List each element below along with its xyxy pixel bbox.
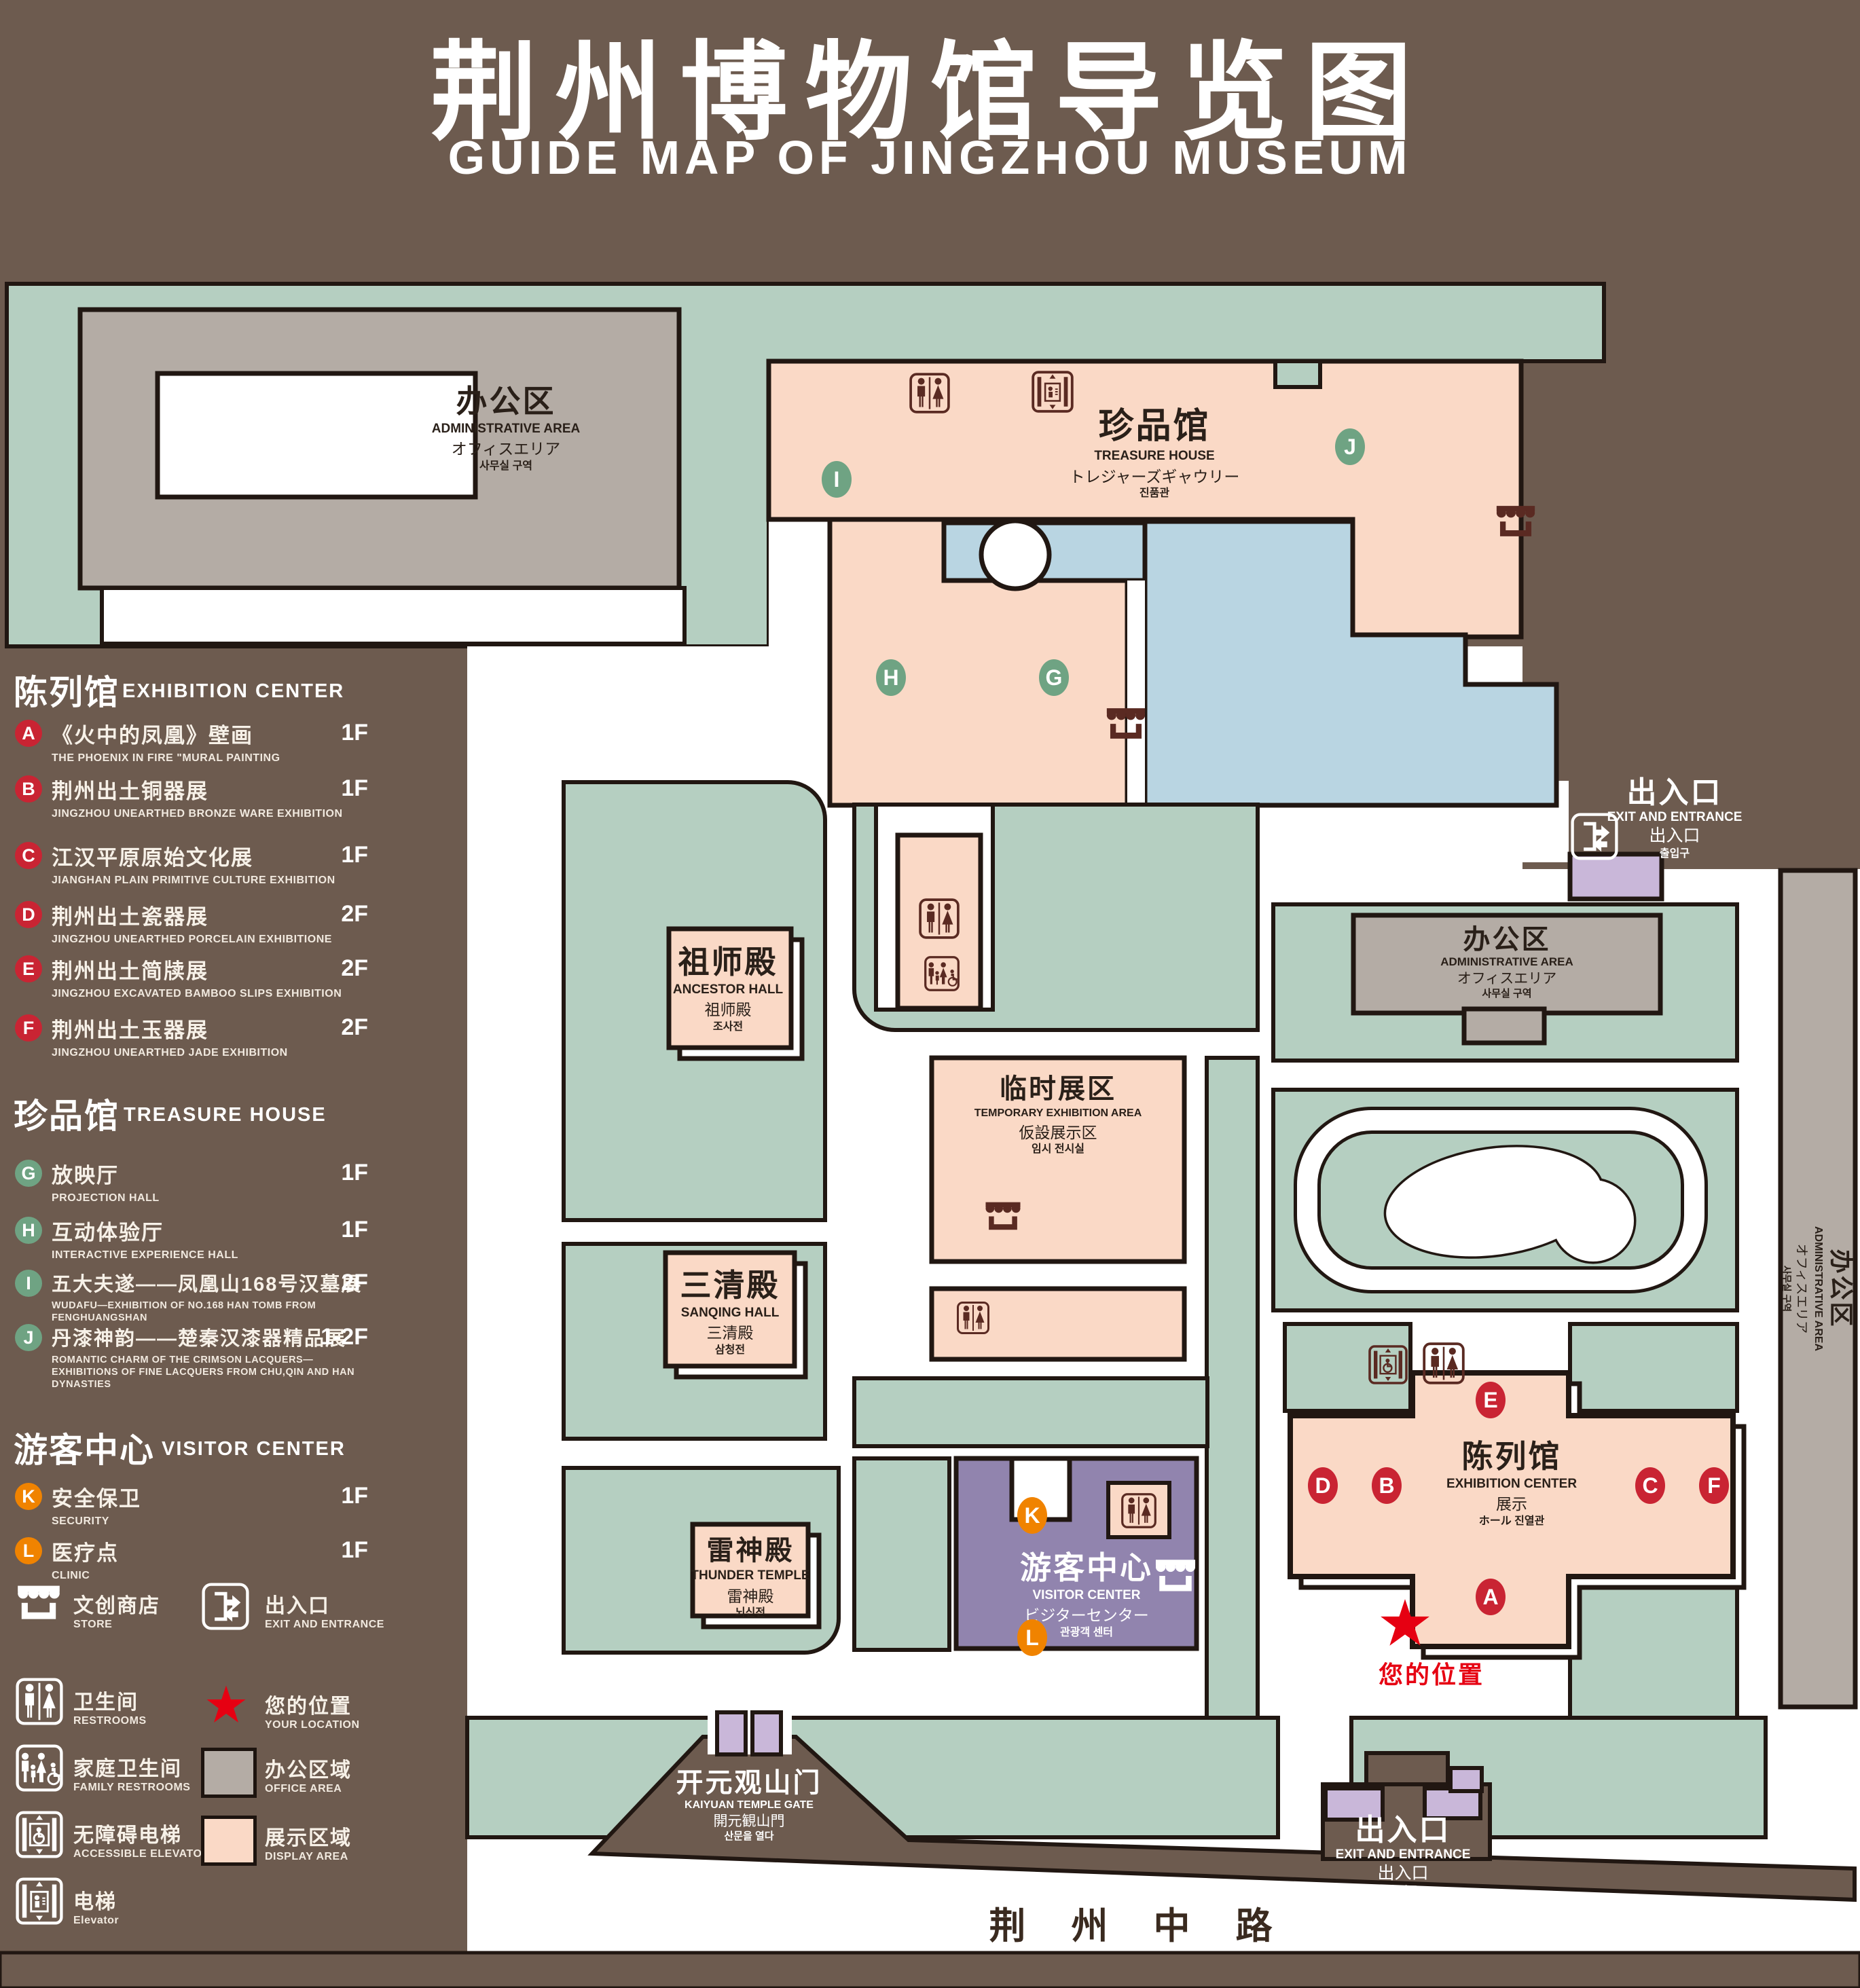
store-icon <box>15 1582 62 1630</box>
map-badge-e: E <box>1476 1382 1506 1418</box>
green-visitor-left <box>854 1458 949 1650</box>
legend-restrooms-sublabel: RESTROOMS <box>73 1715 147 1727</box>
legend-section-treasure-subtitle: TREASURE HOUSE <box>124 1104 327 1126</box>
store-icon <box>1104 705 1148 748</box>
legend-display-area-sublabel: DISPLAY AREA <box>265 1851 348 1863</box>
location-star-icon <box>205 1684 247 1726</box>
admin-nw-label: 办公区 ADMINISTRATIVE AREA オフィスエリア 사무실 구역 <box>432 384 581 472</box>
floor-label: 1F <box>287 1160 368 1186</box>
floor-label: 1F <box>287 842 368 868</box>
map-badge-c: C <box>1635 1467 1665 1504</box>
legend-accessible-elevator-sublabel: ACCESSIBLE ELEVATOR <box>73 1848 211 1860</box>
floor-label: 2F <box>287 1014 368 1041</box>
exhibition-center-label: 陈列馆 EXHIBITION CENTER 展示 ホール 진열관 <box>1446 1439 1577 1527</box>
legend-item-a: A 《火中的凤凰》壁画 THE PHOENIX IN FIRE "MURAL P… <box>15 718 382 765</box>
legend-office-area-label: 办公区域 <box>265 1753 352 1783</box>
legend-item-h: H 互动体验厅 INTERACTIVE EXPERIENCE HALL 1F <box>15 1215 382 1262</box>
green-exh-bottomright <box>1570 1583 1737 1718</box>
floor-label: 2F <box>287 955 368 982</box>
legend-location-sublabel: YOUR LOCATION <box>265 1719 360 1731</box>
legend-exit-sublabel: EXIT AND ENTRANCE <box>265 1619 384 1631</box>
admin-east-label: 办公区 ADMINISTRATIVE AREA オフィスエリア 사무실 구역 <box>1781 1226 1855 1351</box>
floor-label: 1F <box>287 1483 368 1509</box>
legend-badge-l: L <box>15 1537 42 1564</box>
legend-elevator-label: 电梯 <box>73 1885 117 1915</box>
legend-restrooms-label: 卫生间 <box>73 1685 139 1715</box>
legend-item-l: L 医疗点 CLINIC 1F <box>15 1536 382 1583</box>
display-area-swatch <box>201 1816 257 1866</box>
legend-badge-h: H <box>15 1217 42 1244</box>
thunder-temple-label: 雷神殿 THUNDER TEMPLE 雷神殿 뇌신전 <box>691 1536 809 1619</box>
sanqing-hall-label: 三清殿 SANQING HALL 三清殿 삼청전 <box>680 1268 780 1356</box>
legend-badge-f: F <box>15 1014 42 1042</box>
family-restrooms-icon <box>15 1742 64 1794</box>
legend-office-area-sublabel: OFFICE AREA <box>265 1783 342 1795</box>
legend-family-restrooms-sublabel: FAMILY RESTROOMS <box>73 1782 190 1794</box>
legend-item-j: J 丹漆神韵——楚秦汉漆器精品展 ROMANTIC CHARM OF THE C… <box>15 1323 382 1391</box>
store-icon <box>1494 502 1537 546</box>
floor-label: 1F <box>287 1537 368 1564</box>
floor-label: 2F <box>287 901 368 927</box>
legend-section-exhibition-subtitle: EXHIBITION CENTER <box>122 680 344 703</box>
ancestor-hall-label: 祖师殿 ANCESTOR HALL 祖师殿 조사전 <box>673 945 783 1033</box>
legend-item-f: F 荆州出土玉器展 JINGZHOU UNEARTHED JADE EXHIBI… <box>15 1013 382 1060</box>
restrooms-icon <box>1422 1340 1465 1386</box>
legend-badge-i: I <box>15 1270 42 1297</box>
legend-badge-e: E <box>15 955 42 982</box>
road-label: 荆 州 中 路 <box>989 1896 1290 1949</box>
exit-icon <box>201 1582 250 1631</box>
legend-store-label: 文创商店 <box>73 1589 160 1619</box>
legend-item-e: E 荆州出土简牍展 JINGZHOU EXCAVATED BAMBOO SLIP… <box>15 954 382 1001</box>
legend-section-exhibition-title: 陈列馆 <box>14 665 120 714</box>
legend-item-k: K 安全保卫 SECURITY 1F <box>15 1481 382 1528</box>
south-exit-label: 出入口 EXIT AND ENTRANCE 出入口 출입구 <box>1336 1814 1471 1897</box>
map-badge-k: K <box>1017 1497 1047 1534</box>
exit-icon <box>1570 812 1619 861</box>
store-icon <box>983 1199 1023 1238</box>
road-south-strip <box>0 1953 1860 1988</box>
floor-label: 1F <box>287 1217 368 1243</box>
temporary-exhibition-label: 临时展区 TEMPORARY EXHIBITION AREA 仮設展示区 임시 … <box>974 1074 1142 1155</box>
admin-nw-courtyard <box>158 373 475 497</box>
legend-badge-b: B <box>15 775 42 803</box>
path-west-of-treasure-house <box>769 519 830 646</box>
legend-badge-a: A <box>15 720 42 747</box>
admin-mid-tab <box>1464 1009 1544 1043</box>
legend-item-b: B 荆州出土铜器展 JINGZHOU UNEARTHED BRONZE WARE… <box>15 774 382 821</box>
legend-elevator-sublabel: Elevator <box>73 1915 119 1927</box>
treasure-house-label: 珍品馆 TREASURE HOUSE トレジャーズギャウリー 진품관 <box>1070 407 1240 500</box>
elevator-icon <box>1031 369 1074 414</box>
treasure-house-notch <box>1275 361 1320 387</box>
lake-bridge-circle <box>981 521 1049 589</box>
guide-map-page: { "title": {"zh": "荆州博物馆导览图", "en": "GUI… <box>0 0 1860 1988</box>
legend-location-label: 您的位置 <box>265 1689 352 1719</box>
map-badge-g: G <box>1039 659 1069 696</box>
legend-display-area-label: 展示区域 <box>265 1821 352 1851</box>
legend-exit-label: 出入口 <box>265 1589 330 1619</box>
legend-section-treasure-title: 珍品馆 <box>14 1089 120 1138</box>
store-icon <box>1153 1556 1198 1601</box>
office-area-swatch <box>201 1748 257 1798</box>
gate-pillar-right <box>752 1712 781 1754</box>
legend-badge-j: J <box>15 1324 42 1351</box>
legend-accessible-elevator-label: 无障碍电梯 <box>73 1818 182 1848</box>
floor-label: 1-2F <box>287 1324 368 1350</box>
restrooms-icon <box>918 896 960 941</box>
accessible-elevator-icon <box>15 1809 64 1860</box>
legend-item-i: I 五大夫遂——凤凰山168号汉墓展 WUDAFU—EXHIBITION OF … <box>15 1268 382 1324</box>
ne-exit-label: 出入口 EXIT AND ENTRANCE 出入口 출입구 <box>1607 777 1743 860</box>
legend-badge-k: K <box>15 1483 42 1510</box>
restrooms-icon <box>909 371 951 416</box>
restrooms-icon <box>1120 1491 1157 1530</box>
map-badge-h: H <box>876 659 906 696</box>
restrooms-icon <box>15 1676 64 1727</box>
path-wing-lake <box>1127 581 1145 805</box>
map-badge-l: L <box>1017 1619 1047 1656</box>
south-exit-booth-small <box>1451 1768 1482 1791</box>
map-badge-f: F <box>1699 1467 1729 1504</box>
map-badge-a: A <box>1476 1579 1506 1615</box>
legend-item-d: D 荆州出土瓷器展 JINGZHOU UNEARTHED PORCELAIN E… <box>15 900 382 946</box>
restrooms-icon <box>956 1300 990 1336</box>
floor-label: 2F <box>287 1270 368 1296</box>
green-mid-strip <box>854 1378 1207 1446</box>
map-badge-j: J <box>1335 428 1365 465</box>
admin-mid-label: 办公区 ADMINISTRATIVE AREA オフィスエリア 사무실 구역 <box>1440 925 1573 999</box>
elevator-icon <box>15 1875 64 1927</box>
legend-item-g: G 放映厅 PROJECTION HALL 1F <box>15 1158 382 1205</box>
legend-badge-d: D <box>15 901 42 928</box>
green-exh-topright <box>1570 1324 1737 1411</box>
floor-label: 1F <box>287 775 368 802</box>
family-restrooms-icon <box>924 955 960 993</box>
legend-badge-g: G <box>15 1160 42 1187</box>
admin-nw-parking <box>102 588 685 644</box>
your-location-label: 您的位置 <box>1379 1655 1484 1691</box>
your-location-star <box>1379 1597 1432 1650</box>
map-badge-b: B <box>1372 1467 1402 1504</box>
accessible-elevator-icon <box>1368 1343 1408 1386</box>
legend-section-visitor-subtitle: VISITOR CENTER <box>162 1438 346 1460</box>
legend-item-c: C 江汉平原原始文化展 JIANGHAN PLAIN PRIMITIVE CUL… <box>15 841 382 887</box>
gate-label: 开元观山门 KAIYUAN TEMPLE GATE 開元観山門 산문을 열다 <box>676 1768 822 1842</box>
gate-pillar-left <box>717 1712 746 1754</box>
legend-family-restrooms-label: 家庭卫生间 <box>73 1752 182 1782</box>
garden-pond2 <box>1552 1180 1634 1262</box>
map-badge-i: I <box>822 461 852 498</box>
legend-badge-c: C <box>15 842 42 869</box>
legend-section-visitor-title: 游客中心 <box>14 1423 155 1472</box>
floor-label: 1F <box>287 720 368 746</box>
map-badge-d: D <box>1308 1467 1338 1504</box>
legend-store-sublabel: STORE <box>73 1619 112 1631</box>
